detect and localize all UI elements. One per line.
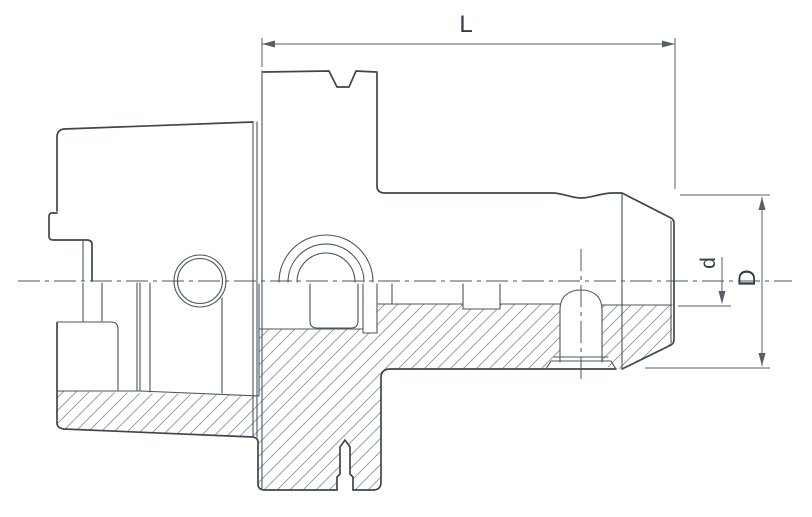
length-arrow-left	[262, 41, 275, 48]
length-dimension-label: L	[459, 11, 472, 38]
length-extension-lines	[262, 38, 675, 189]
taper-counterbore	[57, 322, 118, 390]
flange-top-contour	[263, 71, 376, 87]
tool-holder-drawing: L d D	[0, 0, 812, 517]
drive-slot-tab	[49, 213, 92, 281]
hatch-region-nose	[602, 305, 672, 369]
length-arrow-right	[662, 41, 675, 48]
internal-groove	[310, 284, 358, 328]
section-hatching	[57, 304, 672, 490]
outer-diameter-label: D	[734, 269, 761, 286]
bore-element-edges	[137, 283, 222, 393]
bore-dia-arrow	[719, 291, 726, 304]
hatch-region-main	[57, 304, 560, 490]
clamp-bore-dome-arcs	[279, 235, 373, 282]
technical-drawing-page: L d D	[0, 0, 812, 517]
outer-dia-arrow-top	[759, 197, 766, 210]
dimension-labels: L d D	[459, 11, 761, 287]
bore-diameter-label: d	[697, 257, 720, 269]
outer-dia-arrow-bottom	[759, 353, 766, 366]
flange-notch-hole	[337, 440, 353, 490]
body-bottom-contour	[353, 369, 616, 490]
taper-top-contour	[57, 122, 253, 211]
taper-bore-wall	[57, 284, 259, 396]
